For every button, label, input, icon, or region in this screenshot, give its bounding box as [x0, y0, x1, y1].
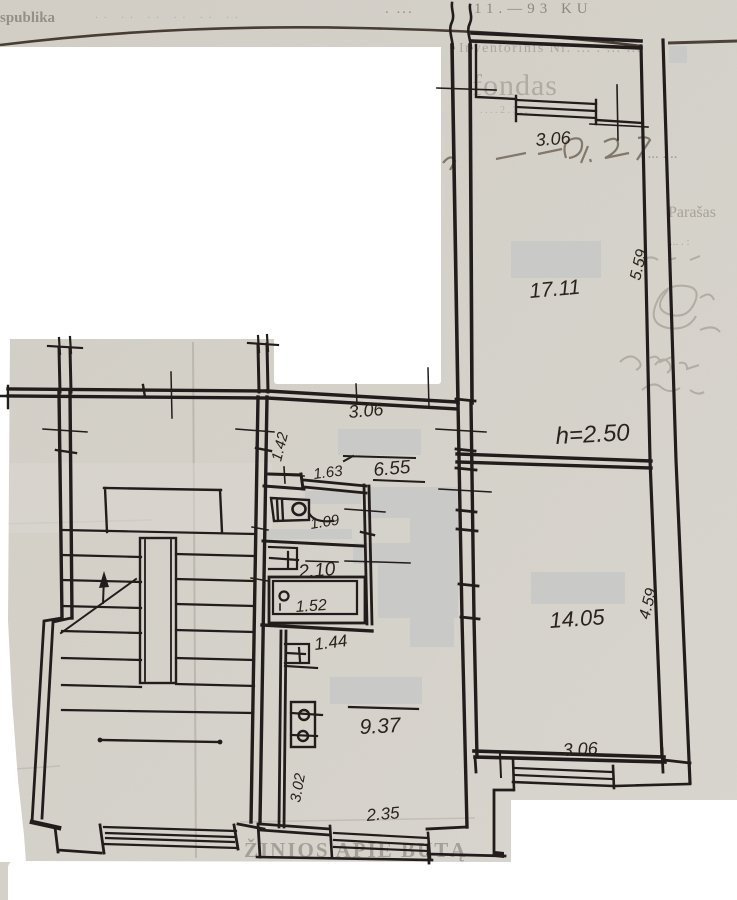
svg-text:11.—93 KU: 11.—93 KU: [474, 1, 593, 17]
svg-text:1.52: 1.52: [295, 597, 327, 616]
svg-text:. ... . ..: . ... . ..: [640, 146, 678, 162]
svg-text:9.37: 9.37: [359, 714, 402, 739]
svg-text:3.06: 3.06: [562, 738, 599, 760]
svg-text:h=2.50: h=2.50: [555, 419, 631, 450]
svg-text:spublika: spublika: [0, 10, 56, 26]
svg-text:1.63: 1.63: [312, 462, 344, 483]
svg-text:3.06: 3.06: [535, 128, 572, 150]
svg-text:17.11: 17.11: [528, 276, 581, 303]
svg-text:1.44: 1.44: [313, 631, 348, 654]
svg-text:Parašas: Parašas: [668, 204, 716, 221]
svg-text:14.05: 14.05: [549, 604, 606, 633]
svg-text:2.35: 2.35: [365, 803, 401, 825]
svg-text:3.06: 3.06: [348, 399, 386, 422]
svg-text:6.55: 6.55: [373, 457, 412, 481]
svg-text:.. .. .. .. .. ..: .. .. .. .. .. ..: [95, 9, 244, 21]
svg-text:. ...: . ...: [385, 1, 414, 17]
svg-text:... . :: ... . :: [670, 236, 690, 248]
svg-text:2.10: 2.10: [297, 559, 337, 583]
